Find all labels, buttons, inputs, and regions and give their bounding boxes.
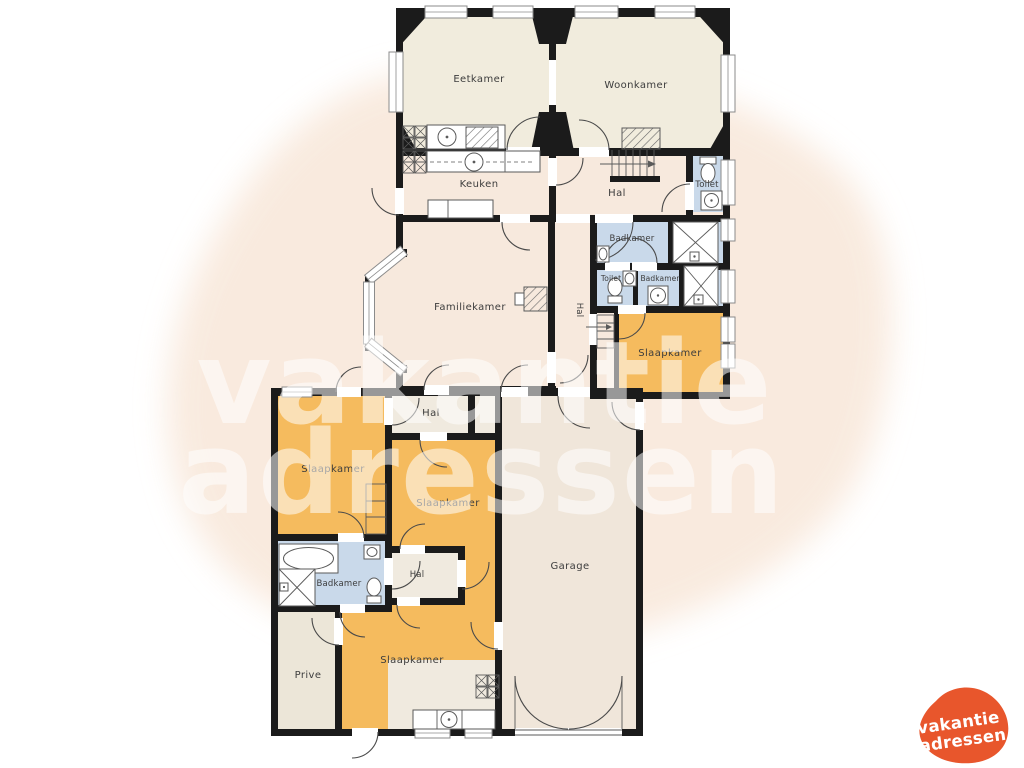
room-label-hal-corridor: Hal: [574, 303, 584, 318]
washbasin-icon-badkamer-mid2: [648, 286, 668, 305]
sink-icon-toilet-upper: [701, 191, 722, 210]
room-label-slaapkamer-bottom: Slaapkamer: [380, 655, 444, 666]
room-label-toilet-mid: Toilet: [600, 274, 621, 283]
window-shower-right-1: [721, 219, 735, 241]
watermark-line2: adressen: [178, 407, 785, 541]
shower-icon-wing: [279, 569, 315, 606]
washbasin-icon-mid: [623, 271, 636, 286]
shower-icon-2: [684, 266, 718, 306]
floorplan-page: Eetkamer Woonkamer Keuken Hal Toilet Bad…: [0, 0, 1024, 768]
window-right-woonkamer: [721, 55, 735, 112]
room-label-prive: Prive: [295, 670, 322, 681]
window-shower-right-2: [721, 270, 735, 303]
window-top-2: [493, 6, 533, 18]
shower-icon-1: [673, 222, 718, 263]
window-top-3: [575, 6, 618, 18]
brand-logo: vakantie adressen: [916, 687, 1008, 763]
room-label-toilet-upper: Toilet: [694, 180, 719, 190]
room-label-hal-upper: Hal: [608, 188, 626, 199]
room-label-badkamer-mid: Badkamer: [609, 234, 654, 244]
room-label-woonkamer: Woonkamer: [604, 80, 668, 91]
toilet-icon-upper: [700, 157, 716, 183]
window-top-1: [425, 6, 467, 18]
washbasin-icon-wing: [364, 545, 380, 559]
room-label-badkamer-wing: Badkamer: [316, 579, 361, 589]
watermark-text: vakantie adressen: [178, 317, 785, 541]
room-label-badkamer-mid2: Badkamer: [640, 274, 680, 283]
room-label-garage: Garage: [550, 561, 589, 572]
room-hal-small-floor: [392, 553, 458, 598]
room-label-hal-small: Hal: [410, 570, 425, 580]
washbasin-icon-badkamer-mid: [597, 246, 609, 262]
room-hal-upper-floor: [556, 156, 686, 215]
window-left-eetkamer: [389, 52, 403, 112]
toilet-icon-wing: [367, 578, 381, 603]
window-toilet-upper: [721, 160, 735, 205]
window-top-4: [655, 6, 695, 18]
room-label-keuken: Keuken: [460, 179, 499, 190]
room-label-familiekamer: Familiekamer: [434, 302, 506, 313]
floorplan-canvas: Eetkamer Woonkamer Keuken Hal Toilet Bad…: [0, 0, 1024, 768]
fireplace-icon-eetkamer: [466, 127, 498, 148]
table-icon-keuken: [428, 200, 493, 218]
fireplace-icon-woonkamer: [622, 128, 660, 149]
room-label-eetkamer: Eetkamer: [453, 74, 505, 85]
